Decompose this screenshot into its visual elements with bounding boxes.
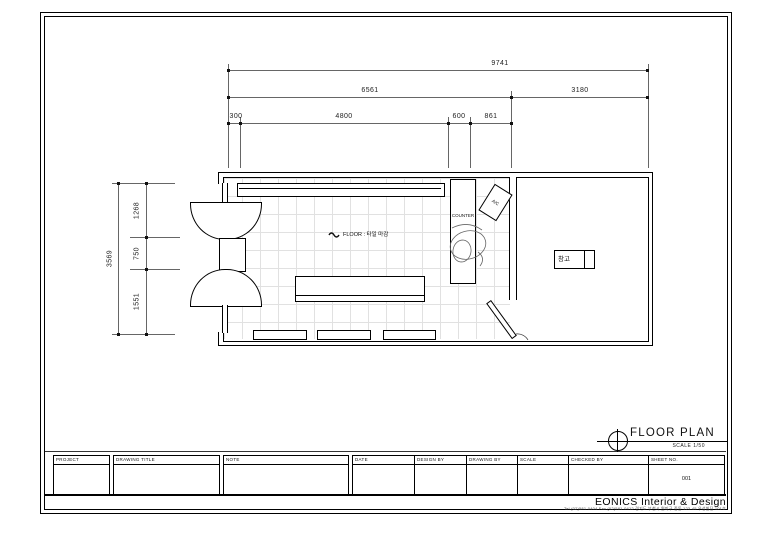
dim-segment-861: 861 — [477, 112, 505, 121]
title-block-drawing-title: DRAWING TITLE — [113, 455, 220, 495]
display-table — [295, 276, 425, 302]
dimension-line — [146, 183, 147, 334]
door-jamb — [222, 183, 228, 202]
floor-finish-note: FLOOR : 타일 마감 — [328, 230, 388, 238]
dimension-line — [511, 97, 648, 98]
dimension-tick — [227, 69, 230, 72]
dimension-tick — [239, 122, 242, 125]
dimension-tick — [145, 182, 148, 185]
dim-segment-300: 300 — [222, 112, 250, 121]
field-label: SHEET NO. — [649, 456, 724, 465]
extension-line — [511, 91, 512, 168]
field-value — [518, 465, 569, 493]
dimension-tick — [510, 122, 513, 125]
dimension-tick — [510, 96, 513, 99]
title-block-note: NOTE — [223, 455, 349, 495]
dimension-line — [228, 97, 511, 98]
dim-segment-750: 750 — [133, 234, 142, 274]
field-label: SCALE — [518, 456, 569, 465]
dim-segment-1268: 1268 — [133, 191, 142, 231]
dim-segment-1551: 1551 — [133, 282, 142, 322]
extension-line — [112, 334, 175, 335]
ac-label: A/C — [491, 198, 500, 206]
field-label: NOTE — [224, 456, 348, 465]
chair-sketch — [438, 218, 500, 276]
drawing-title-symbol-cross — [617, 429, 618, 452]
title-block-checked-by: CHECKED BY — [568, 455, 650, 495]
wave-symbol-icon — [328, 231, 341, 238]
storage-label: 창고 — [558, 255, 570, 264]
title-block-sheet-no: SHEET NO. 001 — [648, 455, 725, 495]
door-swing-arc — [505, 325, 545, 345]
dimension-tick — [117, 182, 120, 185]
dim-overall-width: 9741 — [470, 59, 530, 68]
dimension-tick — [646, 96, 649, 99]
field-label: DRAWING BY — [467, 456, 518, 465]
dimension-tick — [227, 96, 230, 99]
shelf-edge-line — [239, 188, 441, 189]
title-block-scale: SCALE — [517, 455, 570, 495]
dimension-line — [118, 183, 119, 334]
title-block-project: PROJECT — [53, 455, 110, 495]
field-label: DATE — [353, 456, 415, 465]
dimension-tick — [145, 268, 148, 271]
floor-finish-text: FLOOR : 타일 마감 — [343, 230, 388, 238]
extension-line — [648, 64, 649, 168]
window-stand — [253, 330, 307, 340]
door-jamb — [222, 305, 228, 333]
field-value — [353, 465, 415, 493]
drawing-title-symbol-icon — [608, 431, 628, 451]
dimension-tick — [646, 69, 649, 72]
extension-line — [112, 183, 175, 184]
table-edge-line — [296, 295, 424, 296]
field-value — [467, 465, 518, 493]
dimension-tick — [117, 333, 120, 336]
dimension-tick — [145, 236, 148, 239]
entrance-mullion — [219, 238, 246, 272]
dim-overall-height: 3569 — [106, 239, 115, 279]
display-shelf — [237, 183, 445, 197]
sheet-number: 001 — [649, 465, 724, 493]
drawing-title: FLOOR PLAN — [630, 427, 730, 439]
dimension-tick — [447, 122, 450, 125]
drawing-sheet: 9741 6561 3180 300 4800 600 861 3569 126… — [0, 0, 773, 546]
company-contact: Tel.(02)581-0404 Fax.(02)581-0412 경기도 부천… — [250, 506, 726, 512]
title-block-date: DATE — [352, 455, 416, 495]
field-value — [224, 465, 348, 493]
storage-box: 창고 — [554, 250, 595, 269]
field-value — [569, 465, 649, 493]
storage-divider — [584, 251, 585, 268]
dim-left-span: 6561 — [340, 86, 400, 95]
title-block-design-by: DESIGN BY — [414, 455, 468, 495]
dimension-line — [228, 70, 648, 71]
field-value — [114, 465, 219, 493]
title-block-top-rule — [45, 451, 726, 452]
dim-right-span: 3180 — [550, 86, 610, 95]
window-stand — [383, 330, 436, 340]
field-label: PROJECT — [54, 456, 109, 465]
field-label: DESIGN BY — [415, 456, 467, 465]
dimension-tick — [227, 122, 230, 125]
dim-segment-600: 600 — [445, 112, 473, 121]
dimension-tick — [145, 333, 148, 336]
title-block-drawing-by: DRAWING BY — [466, 455, 519, 495]
field-label: CHECKED BY — [569, 456, 649, 465]
window-stand — [317, 330, 371, 340]
field-label: DRAWING TITLE — [114, 456, 219, 465]
field-value — [415, 465, 467, 493]
dimension-tick — [469, 122, 472, 125]
field-value — [54, 465, 109, 493]
drawing-scale: SCALE 1/50 — [630, 443, 705, 449]
dim-segment-4800: 4800 — [314, 112, 374, 121]
